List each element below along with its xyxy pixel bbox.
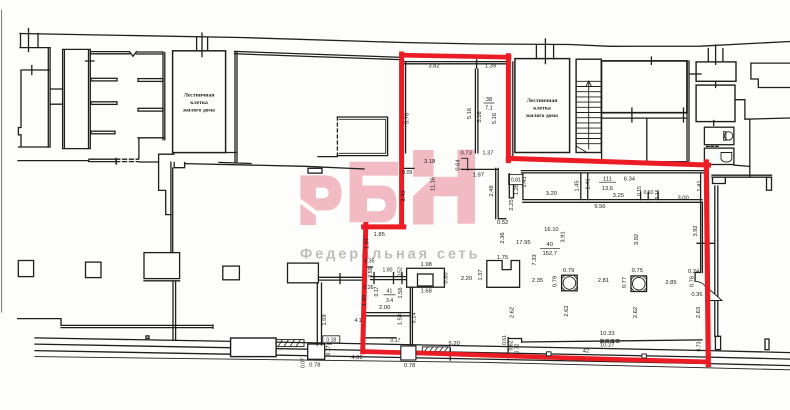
svg-text:2.20: 2.20 bbox=[461, 276, 472, 282]
svg-text:1.85: 1.85 bbox=[374, 232, 385, 238]
svg-text:0.79: 0.79 bbox=[553, 276, 559, 287]
svg-text:5.16: 5.16 bbox=[477, 111, 483, 122]
svg-text:5.78: 5.78 bbox=[405, 113, 411, 124]
svg-text:0.52: 0.52 bbox=[497, 220, 508, 226]
svg-text:0.17: 0.17 bbox=[391, 338, 401, 344]
svg-text:152,7: 152,7 bbox=[542, 251, 557, 257]
svg-text:0.72: 0.72 bbox=[515, 343, 521, 353]
svg-text:1.98: 1.98 bbox=[421, 262, 432, 268]
svg-text:0.17: 0.17 bbox=[374, 286, 380, 296]
svg-text:0.10: 0.10 bbox=[643, 190, 653, 196]
svg-text:0.61: 0.61 bbox=[502, 335, 508, 345]
svg-text:1.37: 1.37 bbox=[482, 151, 493, 157]
svg-text:1.59: 1.59 bbox=[322, 314, 328, 325]
svg-text:0.52: 0.52 bbox=[398, 267, 404, 277]
svg-text:1.97: 1.97 bbox=[365, 238, 371, 249]
svg-text:1.68: 1.68 bbox=[421, 288, 432, 294]
svg-text:10.27: 10.27 bbox=[600, 343, 615, 349]
svg-text:3.18: 3.18 bbox=[424, 159, 435, 165]
svg-text:40: 40 bbox=[546, 242, 552, 248]
svg-text:клетка: клетка bbox=[190, 100, 208, 106]
svg-text:6.34: 6.34 bbox=[624, 176, 636, 182]
svg-text:0.07: 0.07 bbox=[301, 358, 307, 368]
svg-text:0.26: 0.26 bbox=[364, 285, 374, 291]
svg-text:4.06: 4.06 bbox=[351, 355, 362, 361]
svg-text:0.36: 0.36 bbox=[691, 292, 702, 298]
svg-text:0.18: 0.18 bbox=[326, 338, 336, 344]
svg-text:2.63: 2.63 bbox=[696, 307, 702, 318]
svg-text:7.33: 7.33 bbox=[532, 254, 538, 265]
svg-text:1.28: 1.28 bbox=[514, 184, 520, 195]
svg-text:5.16: 5.16 bbox=[467, 108, 473, 119]
svg-text:0.35: 0.35 bbox=[365, 259, 375, 265]
svg-text:9.56: 9.56 bbox=[594, 204, 605, 210]
svg-text:3.25: 3.25 bbox=[613, 193, 624, 199]
svg-text:0.81: 0.81 bbox=[511, 178, 521, 184]
svg-text:2.25: 2.25 bbox=[509, 199, 515, 210]
svg-text:0.80: 0.80 bbox=[444, 272, 450, 283]
svg-text:1.56: 1.56 bbox=[398, 287, 404, 298]
svg-text:5.16: 5.16 bbox=[492, 113, 498, 124]
svg-text:жилого дома: жилого дома bbox=[526, 113, 558, 119]
svg-text:0.78: 0.78 bbox=[404, 363, 415, 369]
svg-text:16.10: 16.10 bbox=[544, 227, 559, 233]
svg-text:3.92: 3.92 bbox=[634, 234, 640, 245]
svg-text:38: 38 bbox=[486, 97, 492, 103]
svg-text:1.39: 1.39 bbox=[485, 64, 496, 70]
svg-text:0.24: 0.24 bbox=[688, 269, 700, 275]
svg-text:Федеральная сеть: Федеральная сеть bbox=[300, 246, 480, 262]
svg-text:42: 42 bbox=[583, 349, 589, 355]
svg-text:0.17: 0.17 bbox=[326, 345, 332, 355]
svg-text:2.62: 2.62 bbox=[510, 307, 516, 318]
svg-text:3.91: 3.91 bbox=[561, 231, 567, 242]
svg-text:3.82: 3.82 bbox=[428, 64, 439, 70]
svg-text:0.73: 0.73 bbox=[461, 151, 472, 157]
svg-text:1.37: 1.37 bbox=[478, 269, 484, 280]
svg-text:17.95: 17.95 bbox=[516, 240, 531, 246]
svg-text:2.35: 2.35 bbox=[532, 278, 543, 284]
svg-text:3.14: 3.14 bbox=[411, 312, 417, 324]
svg-text:1.41: 1.41 bbox=[697, 180, 703, 191]
svg-text:Лестничная: Лестничная bbox=[184, 93, 215, 99]
svg-text:1.90: 1.90 bbox=[383, 268, 393, 274]
svg-text:11.16: 11.16 bbox=[430, 177, 436, 191]
svg-text:1.58: 1.58 bbox=[397, 314, 403, 325]
svg-text:2.62: 2.62 bbox=[633, 307, 639, 318]
svg-text:3.20: 3.20 bbox=[546, 191, 557, 197]
svg-text:41: 41 bbox=[387, 288, 393, 294]
svg-text:1.97: 1.97 bbox=[473, 172, 484, 178]
svg-text:1.41: 1.41 bbox=[586, 178, 592, 189]
svg-text:3.92: 3.92 bbox=[693, 225, 699, 236]
svg-text:0.15: 0.15 bbox=[637, 186, 643, 196]
svg-text:0.62: 0.62 bbox=[508, 340, 514, 350]
svg-text:0.78: 0.78 bbox=[309, 363, 320, 369]
svg-text:2.85: 2.85 bbox=[665, 280, 676, 286]
svg-text:0.77: 0.77 bbox=[622, 277, 628, 288]
svg-text:0.09: 0.09 bbox=[402, 170, 412, 176]
svg-text:0.50: 0.50 bbox=[368, 267, 374, 277]
svg-text:клетка: клетка bbox=[533, 105, 551, 111]
svg-text:0.73: 0.73 bbox=[696, 341, 702, 351]
svg-text:2.48: 2.48 bbox=[489, 185, 495, 196]
svg-text:1.75: 1.75 bbox=[497, 255, 508, 261]
svg-text:жилого дома: жилого дома bbox=[183, 108, 215, 114]
svg-text:7,1: 7,1 bbox=[485, 106, 493, 112]
svg-text:3.00: 3.00 bbox=[677, 195, 688, 201]
svg-text:0.76: 0.76 bbox=[690, 276, 696, 287]
svg-text:0.79: 0.79 bbox=[563, 268, 574, 274]
svg-text:2.00: 2.00 bbox=[379, 305, 390, 311]
svg-text:3.43: 3.43 bbox=[401, 190, 407, 201]
svg-text:5.20: 5.20 bbox=[449, 341, 460, 347]
svg-text:0.75: 0.75 bbox=[632, 268, 643, 274]
svg-text:2.62: 2.62 bbox=[564, 305, 570, 316]
svg-text:1.40: 1.40 bbox=[362, 295, 368, 306]
svg-text:10.33: 10.33 bbox=[600, 331, 615, 337]
svg-text:13,6: 13,6 bbox=[602, 186, 613, 192]
svg-text:2.81: 2.81 bbox=[598, 278, 609, 284]
svg-text:2.36: 2.36 bbox=[500, 232, 506, 243]
svg-text:Лестничная: Лестничная bbox=[527, 98, 558, 104]
svg-text:1.45: 1.45 bbox=[574, 180, 580, 191]
svg-text:3.4: 3.4 bbox=[386, 298, 393, 304]
svg-text:111: 111 bbox=[603, 176, 612, 182]
svg-text:0.64: 0.64 bbox=[456, 159, 462, 171]
svg-text:4.1: 4.1 bbox=[354, 318, 361, 324]
svg-text:0.16: 0.16 bbox=[655, 189, 661, 199]
